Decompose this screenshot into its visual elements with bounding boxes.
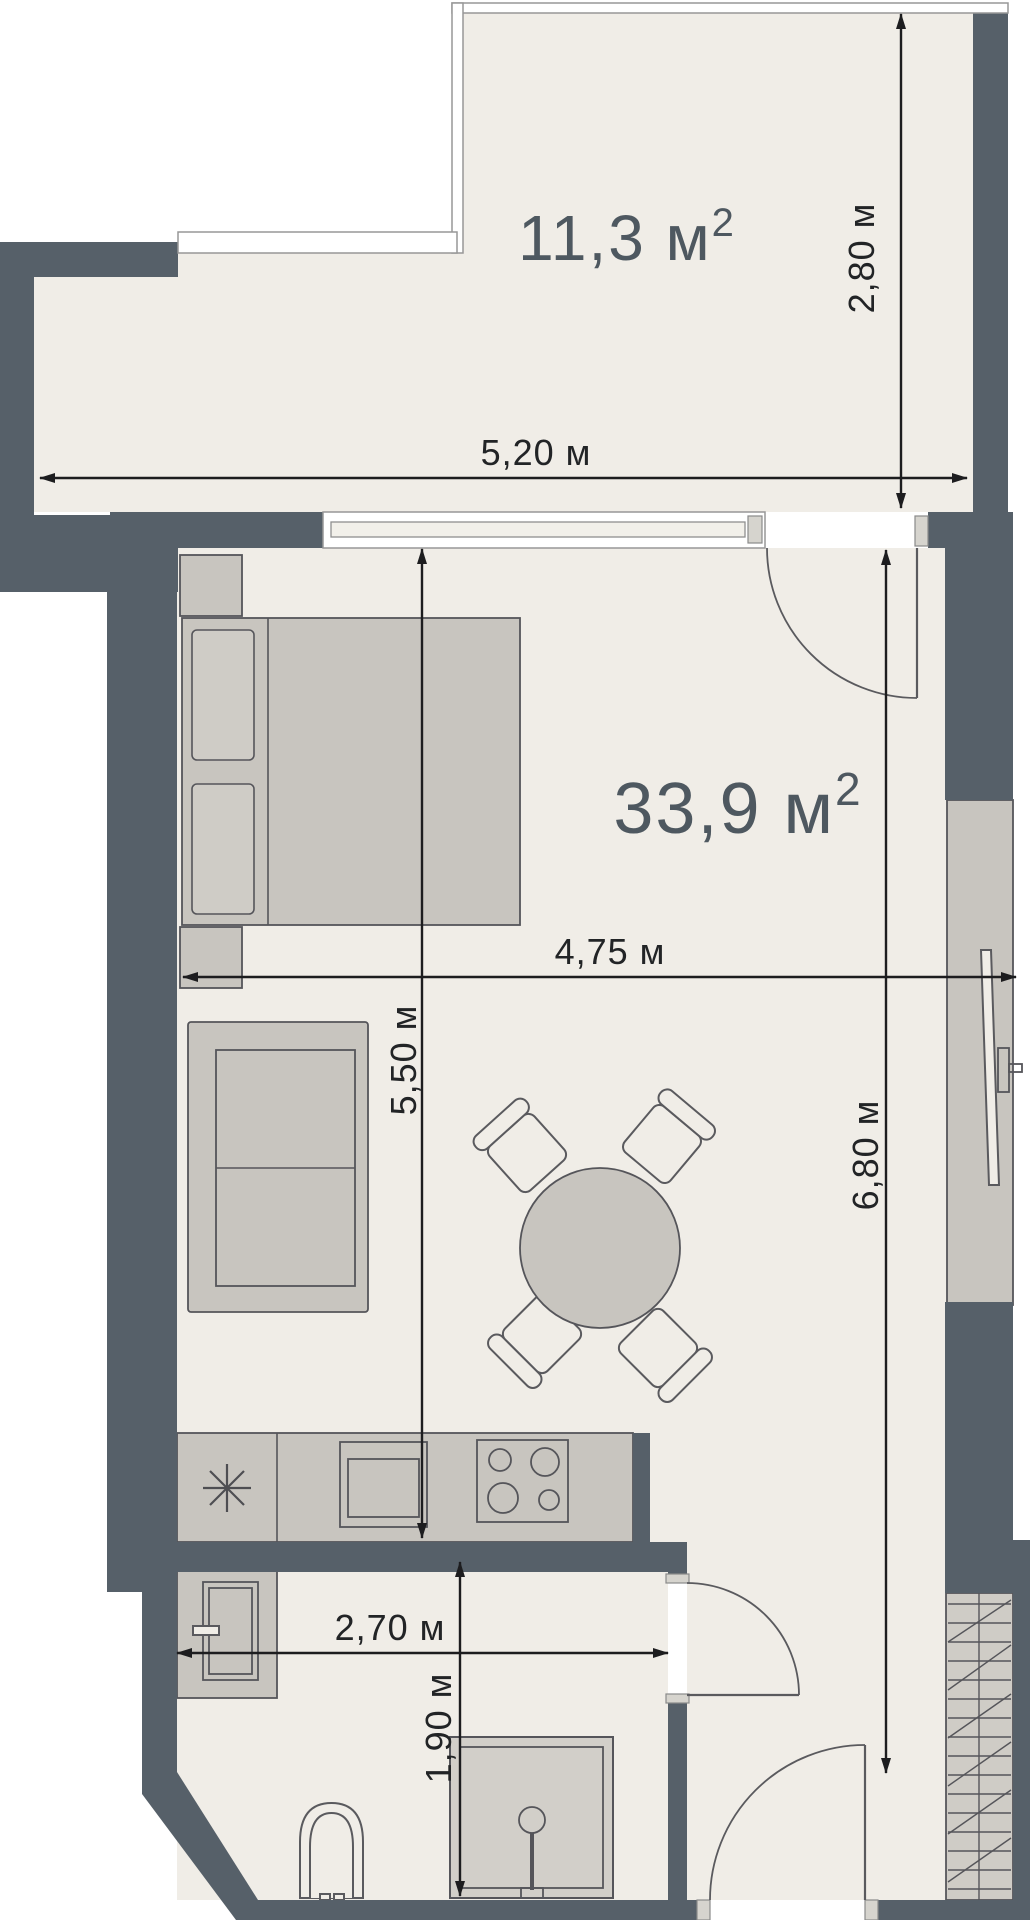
dim-label: 2,80 м [841, 203, 882, 314]
dim-label: 5,50 м [383, 1005, 424, 1116]
wall-segment [973, 13, 1008, 513]
shower [450, 1737, 613, 1898]
dining-table [520, 1168, 680, 1328]
balcony-area-value: 11,3 м [518, 202, 712, 274]
door-jamb [666, 1574, 689, 1583]
wall-stub [633, 1433, 650, 1542]
wardrobe [946, 1593, 1013, 1900]
door-jamb [697, 1900, 710, 1920]
kitchen-counter [177, 1433, 633, 1542]
toilet-hinge [320, 1894, 330, 1900]
balcony-railing-southwest [178, 232, 457, 253]
washing-machine [177, 1570, 277, 1698]
floor-plan-svg: 5,20 м 2,80 м 4,75 м 5,50 м 6,80 м 2,70 … [0, 0, 1030, 1920]
dim-label: 2,70 м [335, 1607, 446, 1648]
toilet-hinge [334, 1894, 344, 1900]
balcony-area-sup: 2 [712, 201, 736, 245]
nightstand-bottom [180, 927, 242, 988]
door-jamb [666, 1694, 689, 1703]
living-room-area-sup: 2 [835, 763, 863, 815]
dim-label: 5,20 м [481, 432, 592, 473]
wall-segment [668, 1695, 687, 1900]
living-room-area-value: 33,9 м [613, 769, 835, 849]
washer-handle [193, 1626, 219, 1635]
living-room-window [323, 512, 765, 548]
balcony-railing-top [452, 3, 1008, 13]
wall-segment [0, 242, 178, 277]
wall-segment [928, 512, 1013, 548]
living-room-area-label: 33,9 м2 [613, 763, 862, 849]
door-jamb [865, 1900, 878, 1920]
sofa [188, 1022, 368, 1312]
bed-pillow [192, 784, 254, 914]
wall-bottom [878, 1900, 1030, 1920]
nightstand-top [180, 555, 242, 616]
wall-segment [107, 592, 177, 1592]
wall-segment [110, 512, 323, 548]
dim-label: 4,75 м [555, 931, 666, 972]
dim-label: 1,90 м [418, 1673, 459, 1784]
tv-console [947, 800, 1013, 1305]
wall-segment [945, 548, 1013, 800]
floor-plan: 5,20 м 2,80 м 4,75 м 5,50 м 6,80 м 2,70 … [0, 0, 1030, 1920]
toilet [300, 1803, 363, 1900]
balcony-area-label: 11,3 м2 [518, 201, 736, 274]
dim-label: 6,80 м [845, 1100, 886, 1211]
wall-segment [1013, 1540, 1030, 1920]
door-jamb [915, 516, 928, 546]
wall-bottom [236, 1900, 697, 1920]
sink-icon [203, 1464, 251, 1512]
balcony-railing-west [452, 3, 463, 253]
bed-pillow [192, 630, 254, 760]
window-divider [748, 516, 762, 543]
wall-segment [142, 1592, 177, 1772]
bed [182, 618, 520, 925]
wall-partition [110, 1542, 687, 1572]
sofa-body [188, 1022, 368, 1312]
wall-segment [0, 277, 34, 517]
wall-segment [945, 1302, 1013, 1593]
